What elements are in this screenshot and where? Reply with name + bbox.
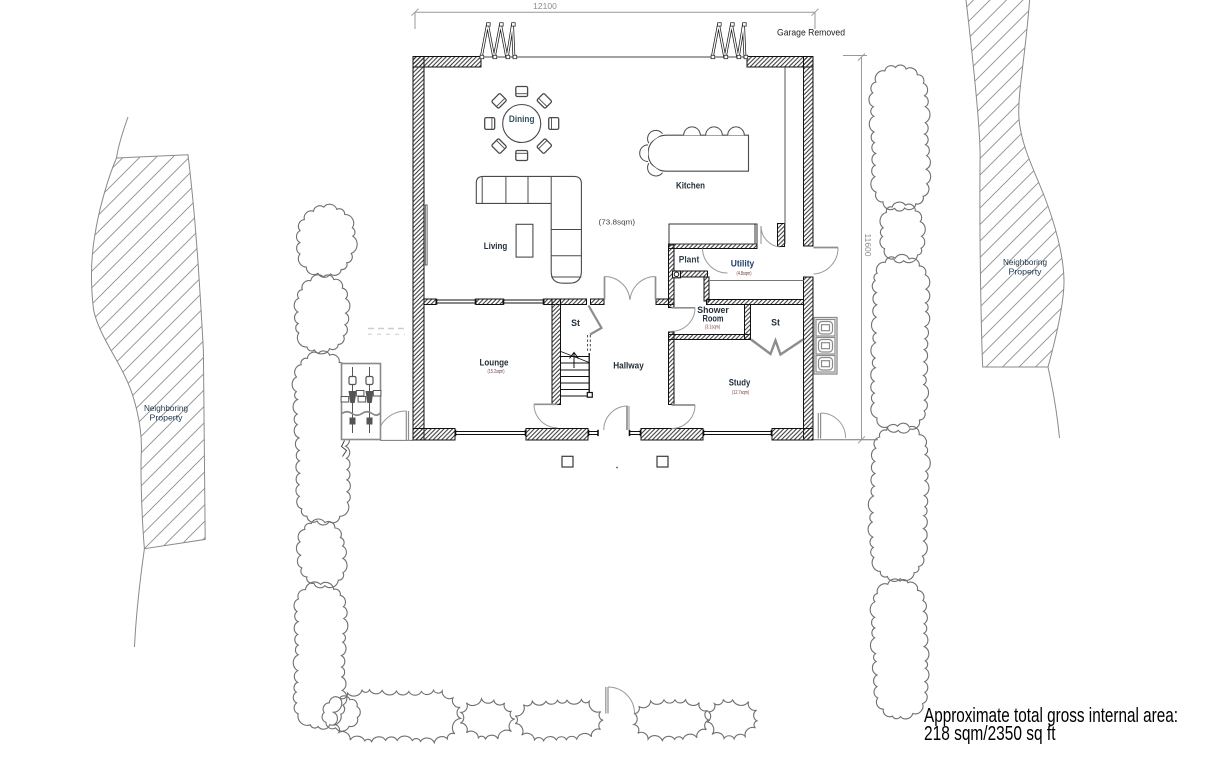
svg-text:Hallway: Hallway	[613, 360, 644, 370]
svg-text:Plant: Plant	[679, 254, 700, 264]
svg-text:St: St	[771, 318, 780, 328]
svg-text:(4.8sqm): (4.8sqm)	[737, 271, 752, 277]
svg-text:11600: 11600	[863, 233, 873, 256]
svg-text:St: St	[571, 318, 580, 328]
svg-text:Property: Property	[1009, 268, 1043, 277]
svg-text:Property: Property	[150, 414, 184, 423]
svg-text:Living: Living	[484, 241, 508, 251]
svg-text:Kitchen: Kitchen	[676, 181, 705, 191]
svg-text:Garage Removed: Garage Removed	[777, 28, 845, 38]
svg-text:Lounge: Lounge	[480, 357, 509, 367]
svg-text:(12.7sqm): (12.7sqm)	[732, 390, 749, 396]
svg-text:(73.8sqm): (73.8sqm)	[599, 218, 636, 227]
svg-text:218 sqm/2350 sq ft: 218 sqm/2350 sq ft	[924, 722, 1056, 745]
svg-text:Study: Study	[729, 377, 751, 387]
svg-text:Neighboring: Neighboring	[144, 404, 188, 413]
svg-text:(15.2sqm): (15.2sqm)	[488, 369, 505, 375]
svg-text:Utility: Utility	[731, 258, 755, 268]
svg-text:12100: 12100	[533, 1, 557, 11]
svg-text:Room: Room	[703, 314, 724, 324]
svg-text:(3.1sqm): (3.1sqm)	[705, 324, 720, 330]
svg-text:Dining: Dining	[509, 114, 535, 124]
svg-text:Neighboring: Neighboring	[1003, 258, 1047, 267]
